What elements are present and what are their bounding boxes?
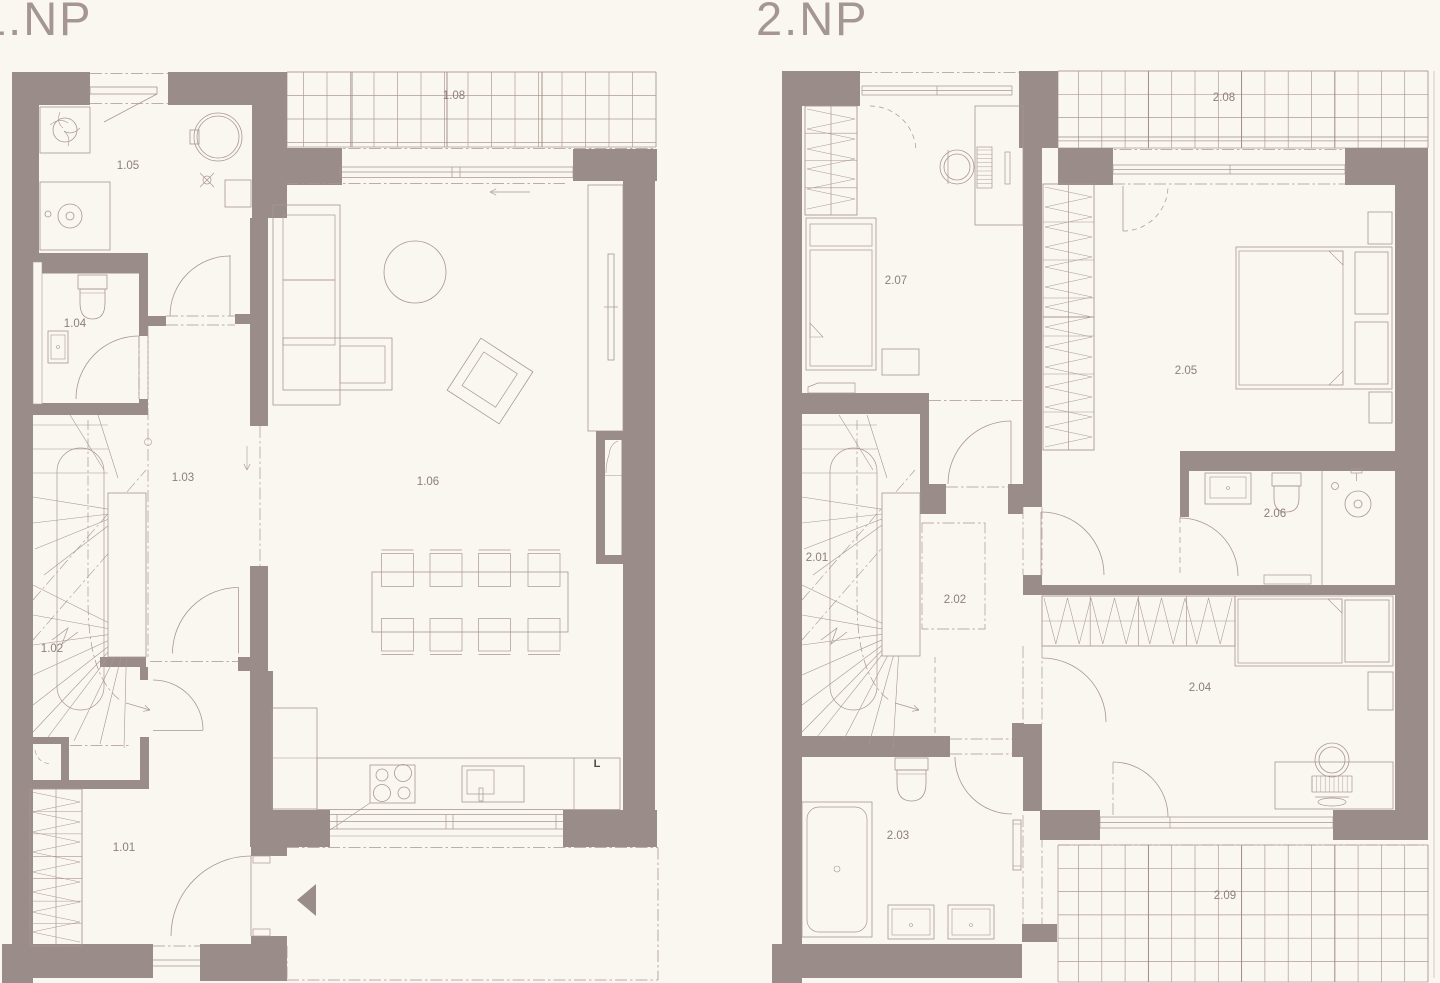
- svg-text:1.02: 1.02: [41, 643, 63, 655]
- svg-text:2.05: 2.05: [1175, 365, 1197, 377]
- svg-text:2.08: 2.08: [1213, 92, 1235, 104]
- svg-text:2.09: 2.09: [1214, 890, 1236, 902]
- svg-text:1.05: 1.05: [117, 160, 139, 172]
- svg-text:2.06: 2.06: [1264, 508, 1286, 520]
- svg-text:2.02: 2.02: [944, 594, 966, 606]
- svg-text:2.NP: 2.NP: [756, 0, 869, 45]
- svg-text:L: L: [594, 758, 601, 770]
- svg-text:1.04: 1.04: [64, 318, 87, 330]
- svg-text:2.01: 2.01: [806, 552, 828, 564]
- svg-text:1.03: 1.03: [172, 472, 194, 484]
- svg-text:1.NP: 1.NP: [0, 0, 93, 45]
- svg-text:1.08: 1.08: [443, 90, 465, 102]
- svg-text:1.01: 1.01: [113, 842, 135, 854]
- svg-text:1.06: 1.06: [417, 476, 439, 488]
- svg-text:2.07: 2.07: [885, 275, 907, 287]
- svg-text:2.04: 2.04: [1189, 682, 1212, 694]
- svg-text:2.03: 2.03: [887, 830, 909, 842]
